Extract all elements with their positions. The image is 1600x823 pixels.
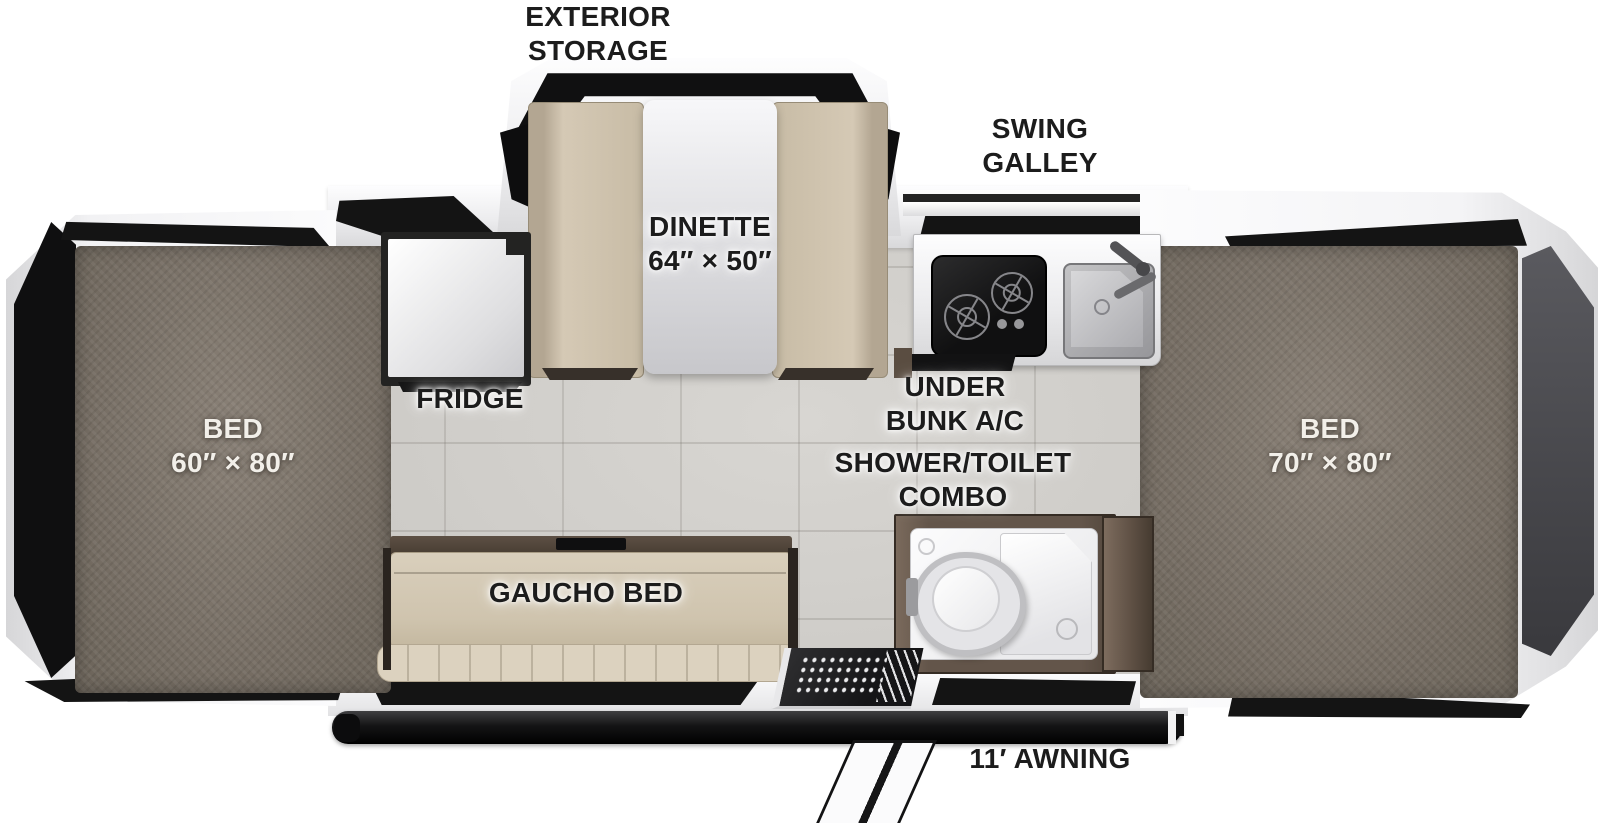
shower-drain — [1056, 618, 1078, 640]
label-swing-galley-line1: SWING — [890, 112, 1190, 146]
awning-rail-notch — [1168, 711, 1176, 744]
entry-step-perforations — [793, 655, 888, 695]
label-exterior-storage: EXTERIOR STORAGE — [448, 0, 748, 68]
fridge-door — [388, 239, 524, 377]
bottom-wall-black-panel-right — [932, 678, 1136, 705]
label-bed-right-name: BED — [1180, 412, 1480, 446]
awning-rail-left-cap — [334, 714, 360, 742]
fridge-corner-notch — [506, 239, 526, 255]
shower-side-cabinet — [1102, 516, 1154, 672]
label-shower-toilet-line1: SHOWER/TOILET — [803, 446, 1103, 480]
stove-burner-large-ring — [957, 307, 977, 327]
label-fridge: FRIDGE — [320, 382, 620, 416]
label-exterior-storage-line1: EXTERIOR — [448, 0, 748, 34]
dinette-bench-left-base — [542, 368, 638, 380]
left-bed-end-panel — [14, 222, 76, 678]
toilet-lid — [932, 566, 1000, 632]
gaucho-bed-seat-bolster — [377, 644, 799, 682]
gaucho-bed-seam — [394, 572, 786, 574]
floorplan: EXTERIOR STORAGE SWING GALLEY DINETTE 64… — [0, 0, 1600, 823]
label-fridge-name: FRIDGE — [320, 382, 620, 416]
label-swing-galley: SWING GALLEY — [890, 112, 1190, 180]
label-bed-left: BED 60″ × 80″ — [83, 412, 383, 480]
stove-knob-2 — [1014, 319, 1024, 329]
right-bed-end-panel — [1522, 246, 1594, 656]
stove-burner-small-ring — [1003, 284, 1021, 302]
bottom-wall-black-panel-left — [370, 678, 760, 705]
gaucho-bed-handle — [556, 538, 626, 550]
label-under-bunk-ac: UNDER BUNK A/C — [805, 370, 1105, 438]
label-awning: 11′ AWNING — [900, 742, 1200, 776]
awning-rail — [332, 711, 1182, 744]
stove-burner-large — [944, 294, 990, 340]
label-bed-right-size: 70″ × 80″ — [1180, 446, 1480, 480]
label-under-bunk-line1: UNDER — [805, 370, 1105, 404]
toilet-hinge — [906, 578, 918, 616]
label-dinette-size: 64″ × 50″ — [560, 244, 860, 278]
stove-knob-1 — [997, 319, 1007, 329]
label-dinette-name: DINETTE — [560, 210, 860, 244]
label-gaucho-bed: GAUCHO BED — [436, 576, 736, 610]
shower-pan-detail — [918, 538, 935, 555]
sink-faucet-base — [1136, 262, 1150, 276]
label-awning-name: 11′ AWNING — [900, 742, 1200, 776]
label-shower-toilet-line2: COMBO — [803, 480, 1103, 514]
gaucho-bed-post-left — [383, 548, 391, 670]
label-shower-toilet: SHOWER/TOILET COMBO — [803, 446, 1103, 514]
label-bed-right: BED 70″ × 80″ — [1180, 412, 1480, 480]
label-bed-left-size: 60″ × 80″ — [83, 446, 383, 480]
under-counter-vent — [906, 354, 1016, 371]
label-gaucho-bed-name: GAUCHO BED — [436, 576, 736, 610]
awning-rail-hook — [1176, 714, 1184, 736]
label-bed-left-name: BED — [83, 412, 383, 446]
label-dinette: DINETTE 64″ × 50″ — [560, 210, 860, 278]
label-exterior-storage-line2: STORAGE — [448, 34, 748, 68]
entry-step-mat — [772, 648, 924, 709]
label-under-bunk-line2: BUNK A/C — [805, 404, 1105, 438]
label-swing-galley-line2: GALLEY — [890, 146, 1190, 180]
stove-burner-small — [991, 272, 1033, 314]
sink-drain — [1094, 299, 1110, 315]
